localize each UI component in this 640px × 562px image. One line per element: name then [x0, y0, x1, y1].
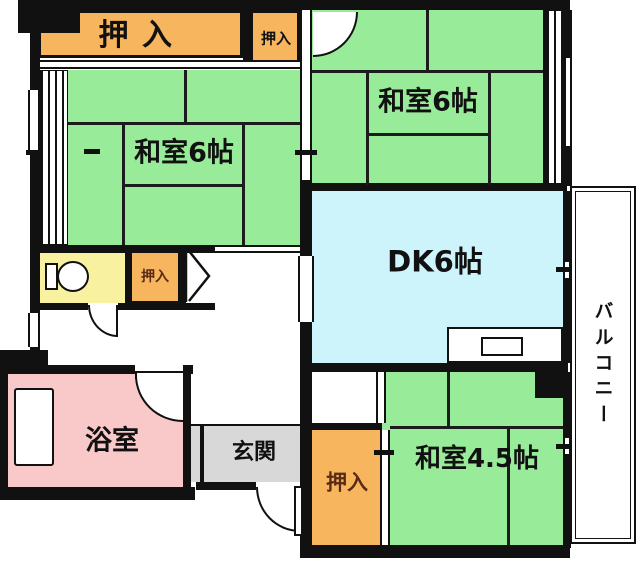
genkan-step-divider	[200, 426, 204, 482]
tatami-line	[447, 372, 450, 429]
door-tick-left-wall	[26, 150, 40, 155]
sliding-door-closet-bottom	[380, 430, 390, 545]
toilet-bowl-icon	[57, 261, 89, 292]
door-arc-toilet	[88, 305, 118, 337]
wall-toilet-closet-divider	[125, 250, 130, 303]
window-right-upper	[564, 58, 572, 146]
wall-closet-bottom-top	[312, 423, 382, 430]
sliding-door-dk-hall	[298, 256, 314, 322]
label-genkan: 玄関	[232, 442, 276, 464]
label-closet-mid: 押入	[141, 270, 169, 284]
wall-genkan-bottom	[196, 482, 256, 490]
wall-toilet-row-bottom-a	[30, 303, 88, 310]
door-tick-washitsu-br-right	[556, 444, 572, 449]
window-hatch-right	[546, 10, 564, 186]
wall-top	[30, 0, 570, 10]
sliding-door-track-closet-top	[40, 60, 300, 69]
label-washitsu-bottom-right: 和室4.5帖	[415, 446, 539, 472]
label-closet-bottom: 押入	[326, 473, 368, 494]
wall-left-b	[30, 152, 40, 305]
label-washitsu-top-right: 和室6帖	[378, 89, 478, 116]
window-left-lower	[28, 313, 40, 347]
wall-left-a	[30, 10, 40, 90]
wall-dk-bottom	[305, 363, 568, 372]
label-dk: DK6帖	[387, 248, 483, 277]
tatami-line	[184, 70, 187, 125]
wall-washitsu-br-right	[563, 372, 571, 548]
door-tick-hatch-left	[84, 149, 100, 154]
door-tick-channel	[295, 150, 317, 155]
wall-bathroom-left	[0, 373, 8, 500]
floor-plan-canvas: バルコニー	[0, 0, 640, 562]
tatami-line	[390, 426, 563, 429]
wall-washitsu-tr-right-edge	[543, 10, 546, 186]
door-tick-closet-bottom	[374, 450, 394, 455]
tatami-line	[366, 133, 491, 136]
label-closet-top-left: 押入	[99, 21, 186, 51]
window-left-upper	[28, 90, 40, 152]
label-washitsu-left: 和室6帖	[134, 140, 234, 167]
sliding-door-washitsu-br	[376, 372, 386, 423]
window-hatch-left	[40, 70, 68, 245]
wall-bathroom-top-a	[0, 365, 135, 374]
wall-bathroom-right	[183, 373, 191, 487]
kitchen-sink-icon	[481, 337, 523, 356]
tatami-line	[122, 184, 245, 187]
folding-door-icon	[182, 248, 216, 304]
wall-toilet-row-bottom-b	[118, 303, 215, 310]
balcony-rail-line: バルコニー	[575, 191, 631, 539]
label-closet-top-small: 押入	[261, 32, 291, 47]
balcony-label: バルコニー	[590, 301, 617, 429]
wall-bottom	[300, 545, 570, 558]
door-leaf-entrance	[294, 486, 303, 536]
tatami-line	[366, 70, 369, 185]
tatami-line	[426, 10, 429, 73]
bathtub-icon	[14, 388, 54, 466]
wall-dk-top	[305, 183, 567, 191]
wall-washitsu-br-notch	[535, 372, 568, 398]
wall-bathroom-bottom	[0, 487, 195, 500]
door-tick-dk-right	[556, 267, 572, 272]
sliding-door-hall-washitsu-left	[215, 245, 300, 253]
tatami-line	[488, 70, 491, 185]
room-balcony: バルコニー	[570, 186, 636, 544]
label-bathroom: 浴室	[85, 428, 139, 455]
